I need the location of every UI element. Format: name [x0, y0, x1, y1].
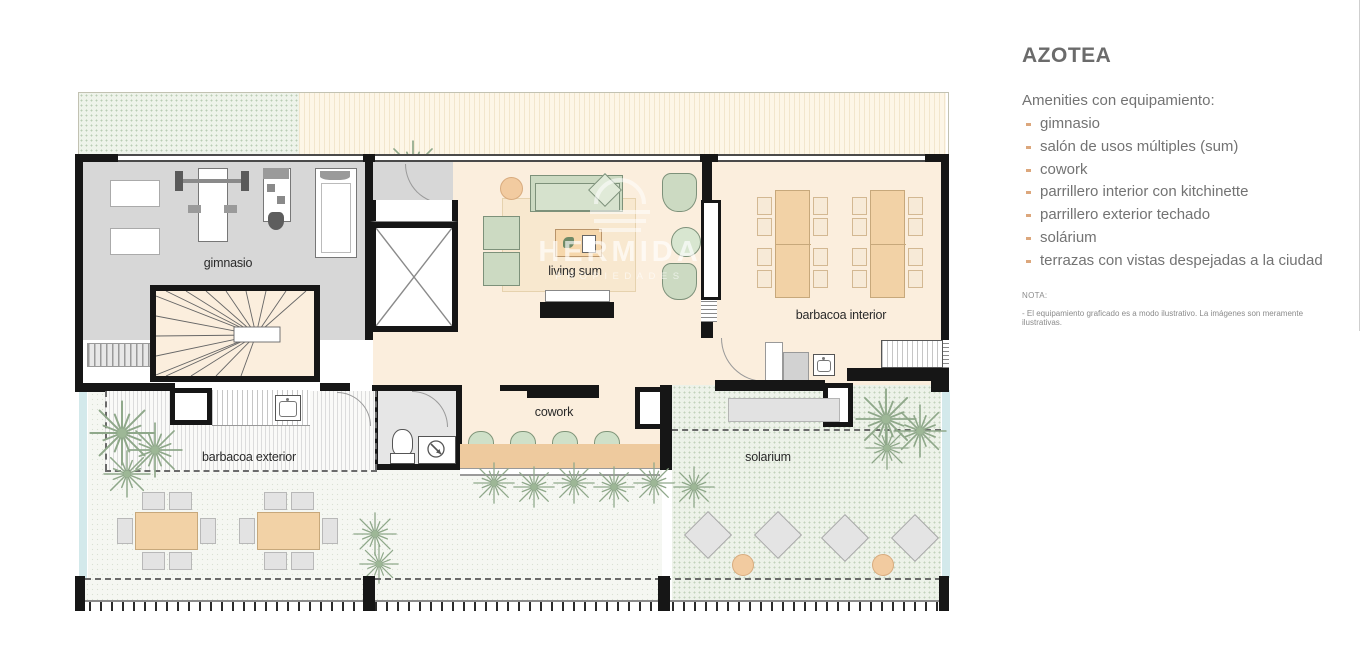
- pouf-icon: [500, 177, 523, 200]
- chair-icon: [908, 218, 923, 236]
- chair-icon: [813, 218, 828, 236]
- plant-icon: [513, 466, 555, 508]
- cable-weight-icon: [277, 196, 285, 204]
- armchair-icon: [483, 216, 520, 250]
- gym-mat-icon: [110, 228, 160, 255]
- chair-icon: [852, 270, 867, 288]
- wall: [527, 385, 599, 398]
- wall: [540, 302, 614, 318]
- shower-icon: [418, 436, 456, 464]
- chair-icon: [169, 552, 192, 570]
- railing-ticks: [78, 602, 949, 611]
- chair-icon: [813, 197, 828, 215]
- bench-foot-icon: [188, 205, 201, 213]
- sink-icon: [275, 395, 301, 421]
- plant-icon: [673, 466, 715, 508]
- wall: [660, 385, 672, 470]
- wall: [700, 154, 718, 162]
- chair-icon: [757, 270, 772, 288]
- room-label-barbacoa-interior: barbacoa interior: [771, 308, 911, 322]
- side-table-icon: [732, 554, 754, 576]
- cable-weight-icon: [267, 184, 275, 192]
- column: [658, 576, 670, 611]
- console-icon: [545, 290, 610, 302]
- wall: [500, 385, 530, 391]
- top-terrace: [78, 92, 949, 158]
- note-label: NOTA:: [1022, 291, 1344, 300]
- grate-icon: [87, 343, 151, 367]
- treadmill-console: [320, 171, 350, 180]
- door-arc: [412, 391, 448, 427]
- chair-icon: [291, 552, 314, 570]
- wall: [941, 154, 949, 340]
- amenities-list: gimnasio salón de usos múltiples (sum) c…: [1022, 113, 1344, 273]
- wall: [701, 322, 713, 338]
- chair-icon: [813, 248, 828, 266]
- room-label-cowork: cowork: [504, 405, 604, 419]
- chair-icon: [200, 518, 216, 544]
- chair-icon: [757, 248, 772, 266]
- treadmill-belt: [321, 183, 351, 253]
- elevator-door: [370, 200, 458, 222]
- page-title: AZOTEA: [1022, 44, 1344, 68]
- column: [75, 576, 85, 611]
- amenity-item: gimnasio: [1022, 113, 1344, 136]
- coffee-table-icon: [555, 229, 602, 257]
- plant-icon: [865, 426, 909, 470]
- chair-icon: [142, 552, 165, 570]
- barbell-plate-icon: [241, 171, 249, 191]
- chair-icon: [264, 492, 287, 510]
- elevator-icon: [370, 222, 458, 332]
- chair-icon: [239, 518, 255, 544]
- chair-icon: [169, 492, 192, 510]
- dining-table-icon: [870, 190, 905, 298]
- amenity-item: parrillero exterior techado: [1022, 204, 1344, 227]
- dining-table-icon: [135, 512, 198, 550]
- plant-icon: [103, 450, 151, 498]
- plant-icon: [593, 466, 635, 508]
- wall: [78, 154, 118, 162]
- dining-table-icon: [775, 190, 810, 298]
- wall: [75, 154, 83, 392]
- grill-icon: [881, 340, 943, 368]
- toilet-icon: [392, 429, 413, 456]
- info-panel: AZOTEA Amenities con equipamiento: gimna…: [1022, 44, 1344, 327]
- chair-icon: [757, 218, 772, 236]
- toilet-tank: [390, 453, 415, 464]
- table-plant-icon: [563, 237, 574, 248]
- barbell-icon: [175, 179, 249, 183]
- wall: [715, 380, 825, 391]
- note-text: - El equipamiento graficado es a modo il…: [1022, 309, 1344, 327]
- chair-icon: [757, 197, 772, 215]
- column: [363, 576, 375, 611]
- chair-icon: [142, 492, 165, 510]
- column: [939, 576, 949, 611]
- amenity-item: salón de usos múltiples (sum): [1022, 136, 1344, 159]
- chair-icon: [291, 492, 314, 510]
- wall: [847, 368, 949, 381]
- amenity-item: cowork: [1022, 159, 1344, 182]
- floorplan-page: gimnasio: [0, 0, 1365, 659]
- dashed-boundary: [85, 578, 941, 580]
- page-divider-line: [1359, 0, 1360, 331]
- dining-table-icon: [257, 512, 320, 550]
- planter-box: [170, 388, 212, 425]
- side-table-icon: [671, 227, 701, 257]
- room-label-barbacoa-exterior: barbacoa exterior: [179, 450, 319, 464]
- glass-railing: [78, 392, 88, 578]
- chair-icon: [908, 270, 923, 288]
- chair-icon: [852, 248, 867, 266]
- plant-icon: [473, 462, 515, 504]
- chair-icon: [908, 248, 923, 266]
- terrace-paving: [79, 93, 299, 155]
- amenity-item: terrazas con vistas despejadas a la ciud…: [1022, 250, 1344, 273]
- amenities-heading: Amenities con equipamiento:: [1022, 92, 1344, 109]
- side-table-icon: [872, 554, 894, 576]
- tub-chair-icon: [662, 263, 697, 300]
- window-wall: [78, 154, 947, 162]
- kitchen-cabinet-icon: [765, 342, 783, 384]
- gym-mat-icon: [110, 180, 160, 207]
- kettlebell-icon: [268, 212, 284, 230]
- chair-icon: [852, 218, 867, 236]
- cable-machine-top: [263, 168, 289, 179]
- chair-icon: [852, 197, 867, 215]
- wall: [702, 162, 712, 204]
- plant-icon: [633, 462, 675, 504]
- chair-icon: [813, 270, 828, 288]
- bench-foot-icon: [224, 205, 237, 213]
- chair-icon: [264, 552, 287, 570]
- room-label-gimnasio: gimnasio: [168, 256, 288, 270]
- barbell-plate-icon: [175, 171, 183, 191]
- screen-icon: [701, 300, 717, 322]
- tub-chair-icon: [662, 173, 697, 212]
- wall-niche: [701, 200, 721, 300]
- chair-icon: [908, 197, 923, 215]
- wall: [363, 154, 375, 162]
- table-book-icon: [582, 235, 596, 253]
- bench-icon: [728, 398, 840, 422]
- plant-icon: [553, 462, 595, 504]
- sink-icon: [813, 354, 835, 376]
- chair-icon: [322, 518, 338, 544]
- amenity-item: solárium: [1022, 227, 1344, 250]
- amenity-item: parrillero interior con kitchinette: [1022, 181, 1344, 204]
- bathroom: [372, 385, 462, 470]
- stairs-icon: [150, 285, 320, 382]
- room-label-solarium: solarium: [718, 450, 818, 464]
- chair-icon: [117, 518, 133, 544]
- room-label-living-sum: living sum: [515, 264, 635, 278]
- floor-plan: gimnasio: [75, 88, 952, 623]
- dashed-boundary: [375, 391, 377, 470]
